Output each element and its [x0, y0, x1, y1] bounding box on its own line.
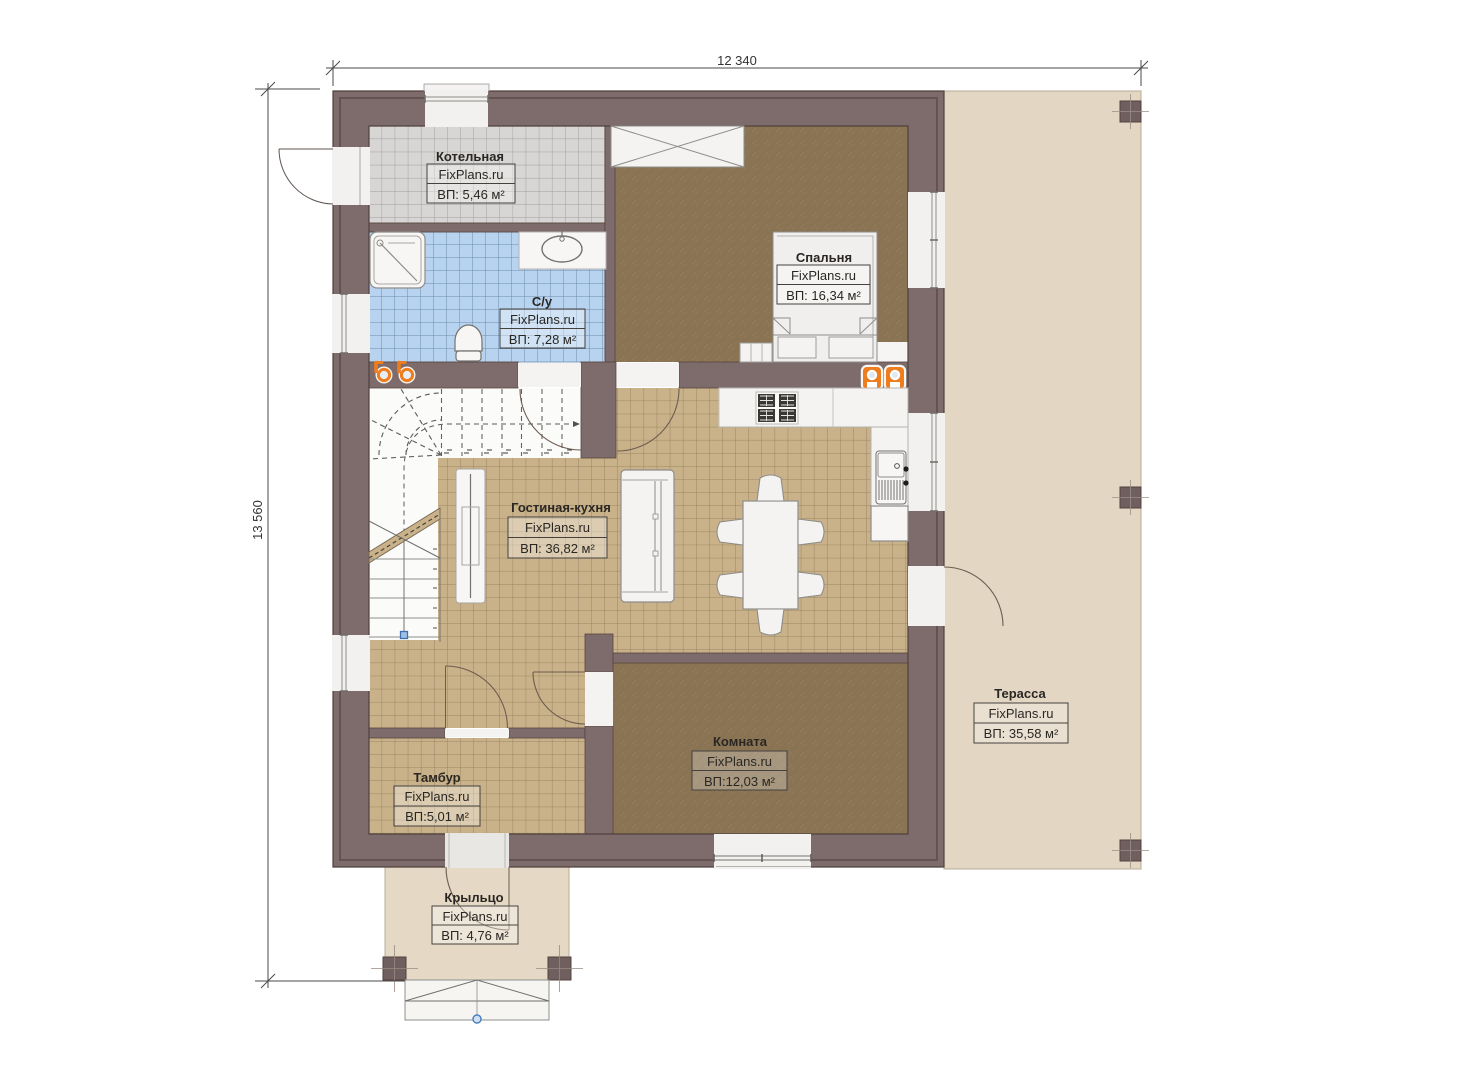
svg-text:Крыльцо: Крыльцо [444, 890, 503, 905]
svg-text:13 560: 13 560 [250, 500, 265, 540]
svg-text:Тамбур: Тамбур [413, 770, 460, 785]
svg-text:ВП: 4,76 м²: ВП: 4,76 м² [441, 928, 509, 943]
svg-text:ВП:12,03 м²: ВП:12,03 м² [704, 774, 776, 789]
svg-text:ВП: 16,34 м²: ВП: 16,34 м² [786, 288, 861, 303]
svg-text:С/у: С/у [532, 294, 553, 309]
svg-text:Котельная: Котельная [436, 149, 504, 164]
svg-text:FixPlans.ru: FixPlans.ru [438, 167, 503, 182]
svg-text:FixPlans.ru: FixPlans.ru [404, 789, 469, 804]
svg-text:Спальня: Спальня [796, 250, 852, 265]
svg-text:Терасса: Терасса [994, 686, 1046, 701]
svg-text:ВП: 36,82 м²: ВП: 36,82 м² [520, 541, 595, 556]
svg-text:Гостиная-кухня: Гостиная-кухня [511, 500, 611, 515]
svg-text:ВП: 35,58 м²: ВП: 35,58 м² [984, 726, 1059, 741]
svg-text:FixPlans.ru: FixPlans.ru [525, 520, 590, 535]
svg-text:FixPlans.ru: FixPlans.ru [510, 312, 575, 327]
svg-text:FixPlans.ru: FixPlans.ru [442, 909, 507, 924]
svg-text:Комната: Комната [713, 734, 768, 749]
svg-text:FixPlans.ru: FixPlans.ru [988, 706, 1053, 721]
svg-text:FixPlans.ru: FixPlans.ru [707, 754, 772, 769]
svg-text:ВП: 5,46 м²: ВП: 5,46 м² [437, 187, 505, 202]
svg-text:FixPlans.ru: FixPlans.ru [791, 268, 856, 283]
svg-text:12 340: 12 340 [717, 53, 757, 68]
svg-text:ВП:5,01 м²: ВП:5,01 м² [405, 809, 469, 824]
svg-text:ВП: 7,28 м²: ВП: 7,28 м² [509, 332, 577, 347]
